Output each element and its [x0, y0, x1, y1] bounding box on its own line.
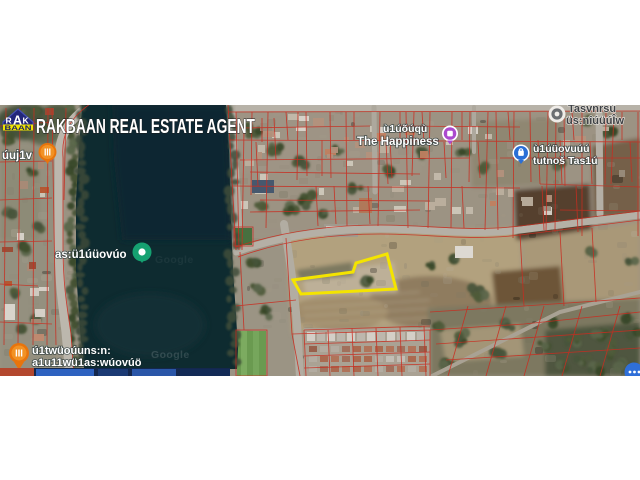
svg-text:K: K — [23, 116, 30, 126]
svg-text:tutnoš Tas1ú: tutnoš Tas1ú — [533, 155, 598, 167]
svg-text:ù1úõúqù: ù1úõúqù — [383, 123, 427, 135]
svg-text:Google: Google — [155, 254, 194, 266]
svg-text:ù1úüovuúú: ù1úüovuúú — [533, 143, 590, 155]
svg-text:úuj1v: úuj1v — [2, 150, 33, 162]
svg-text:ú1twüoúuns:n:: ú1twüoúuns:n: — [32, 345, 111, 357]
svg-text:R: R — [6, 116, 12, 126]
svg-text:BAAN: BAAN — [5, 126, 32, 132]
svg-text:a1u11wü1as:wúovúö: a1u11wü1as:wúovúö — [32, 357, 142, 369]
svg-text:RAKBAAN REAL ESTATE AGENT: RAKBAAN REAL ESTATE AGENT — [36, 116, 255, 138]
svg-text:üs:nîúüúÎw: üs:nîúüúÎw — [566, 114, 624, 127]
svg-text:as:ü1úüovúo: as:ü1úüovúo — [55, 249, 127, 261]
svg-text:Google: Google — [151, 349, 190, 361]
svg-text:The Happiness: The Happiness — [357, 136, 439, 148]
